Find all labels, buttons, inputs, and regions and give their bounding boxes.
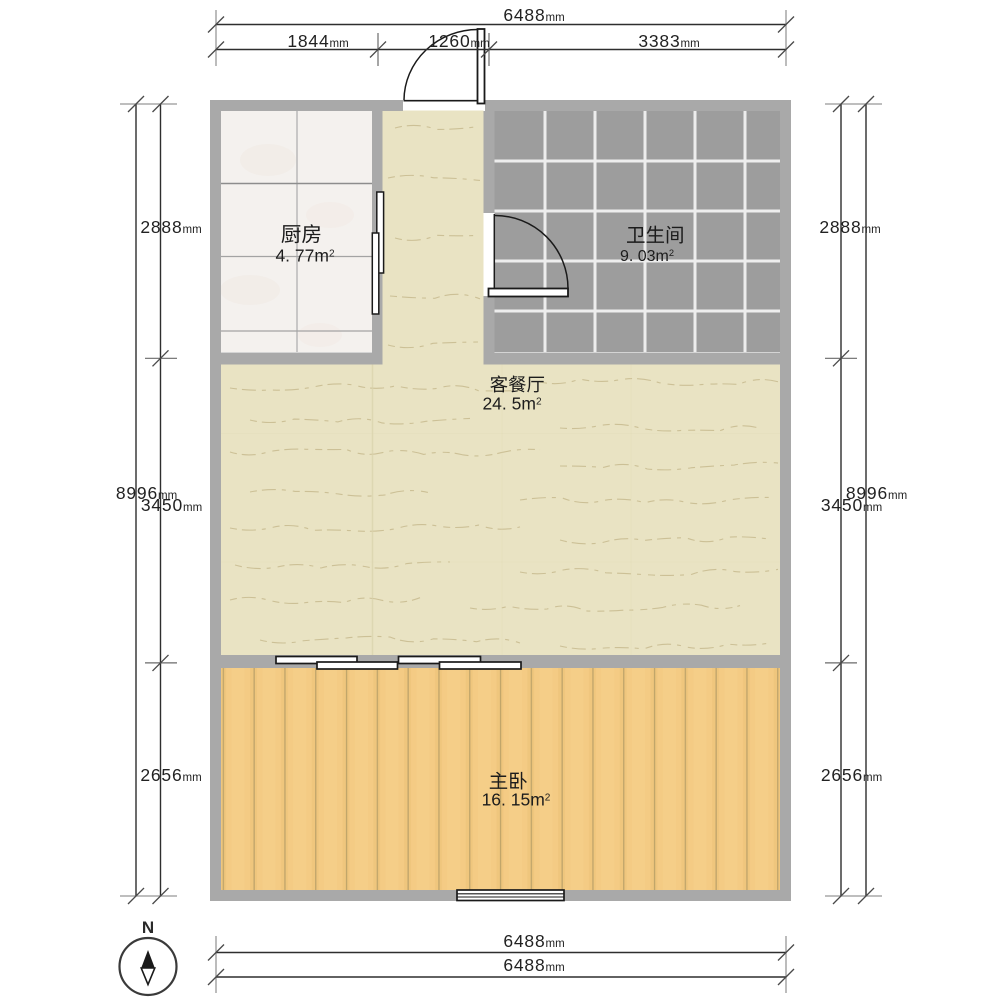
svg-text:4. 77m2: 4. 77m2 xyxy=(275,246,335,266)
svg-text:16. 15m2: 16. 15m2 xyxy=(482,790,551,810)
svg-text:24. 5m2: 24. 5m2 xyxy=(482,394,542,414)
svg-text:9. 03m2: 9. 03m2 xyxy=(620,248,674,265)
svg-text:N: N xyxy=(142,918,154,937)
